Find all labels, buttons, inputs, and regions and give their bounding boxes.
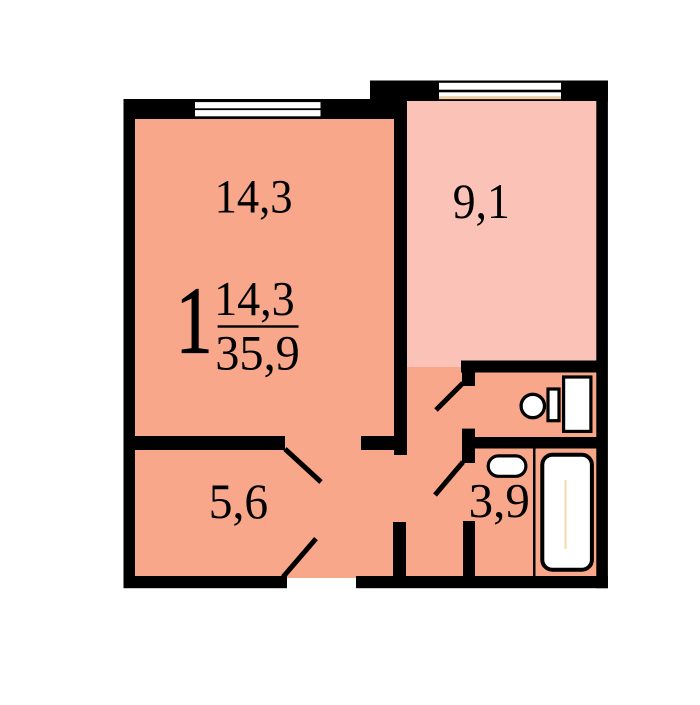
svg-text:35,9: 35,9 <box>215 325 300 381</box>
svg-text:5,6: 5,6 <box>209 475 268 529</box>
svg-text:9,1: 9,1 <box>453 174 510 229</box>
svg-text:14,3: 14,3 <box>214 273 295 326</box>
svg-text:3,9: 3,9 <box>469 473 530 528</box>
svg-text:14,3: 14,3 <box>215 171 293 224</box>
svg-text:1: 1 <box>176 269 213 374</box>
